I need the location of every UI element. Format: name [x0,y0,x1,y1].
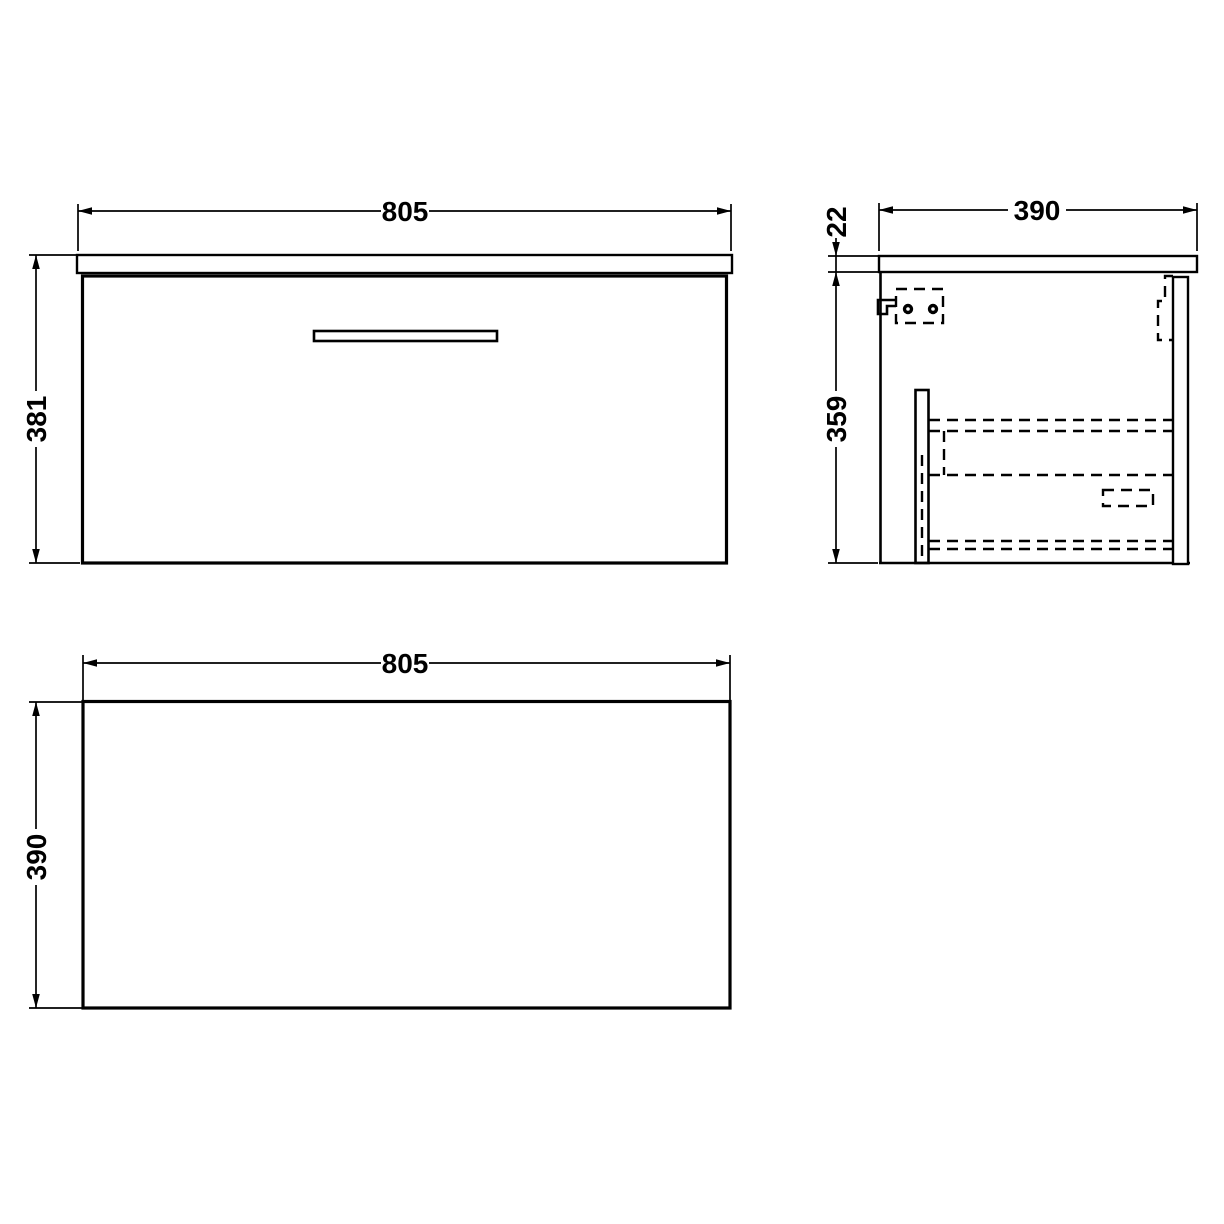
front-worktop [77,255,732,273]
side-depth-label: 390 [1014,195,1061,226]
side-hanging-bracket [1158,276,1173,340]
technical-drawing-canvas: 805 381 390 22 359 [0,0,1224,1224]
front-cabinet [83,276,727,563]
side-bracket-screw-left-center [906,307,910,311]
plan-width-arrow-left [83,659,97,667]
side-depth-arrow-right [1183,206,1197,214]
vanity-unit-dimension-drawing: 805 381 390 22 359 [0,0,1224,1224]
side-worktop-thickness-label: 22 [821,206,852,237]
side-worktop [879,256,1197,272]
front-width-arrow-right [717,207,731,215]
side-runner-clip [1103,490,1153,506]
plan-worktop-outline [83,702,730,1009]
side-back-panel [1173,277,1188,564]
front-height-label: 381 [21,396,52,443]
side-cabinet-arrow-top [832,272,840,286]
front-width-label: 805 [382,196,429,227]
plan-depth-label: 390 [21,834,52,881]
side-bracket-screw-right-center [931,307,935,311]
side-view: 390 22 359 [821,195,1197,564]
plan-depth-arrow-top [32,702,40,716]
front-height-arrow-bottom [32,549,40,563]
front-width-arrow-left [78,207,92,215]
side-depth-arrow-left [879,206,893,214]
side-worktop-arrow-top [832,242,840,256]
plan-width-arrow-right [716,659,730,667]
side-cabinet-height-label: 359 [821,396,852,443]
plan-view: 805 390 [21,648,730,1008]
front-view: 805 381 [21,196,732,563]
side-cabinet-arrow-bottom [832,549,840,563]
front-height-arrow-top [32,255,40,269]
plan-width-label: 805 [382,648,429,679]
plan-depth-arrow-bottom [32,994,40,1008]
